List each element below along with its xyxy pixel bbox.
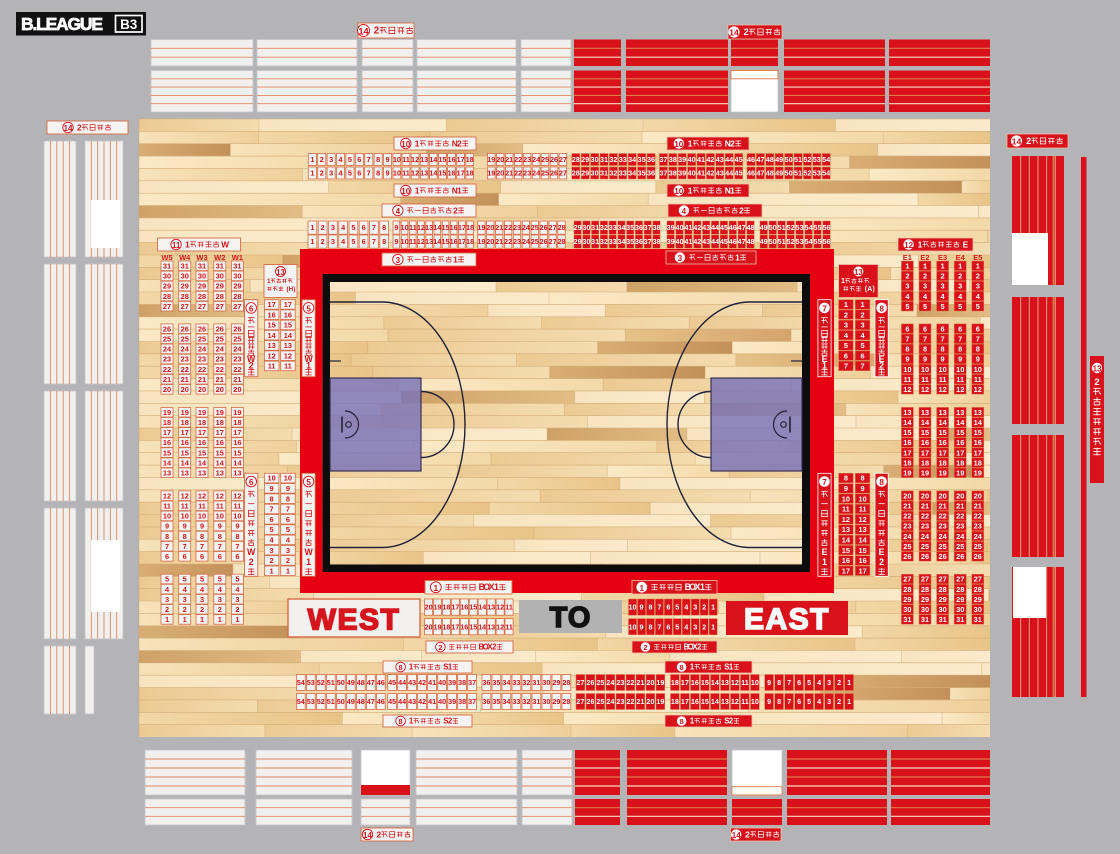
svg-text:41: 41 (697, 155, 705, 164)
svg-text:26: 26 (216, 324, 224, 333)
svg-text:18: 18 (956, 458, 964, 467)
svg-text:40: 40 (438, 678, 446, 687)
svg-text:13: 13 (721, 678, 729, 687)
svg-text:8: 8 (958, 345, 962, 354)
svg-text:3: 3 (183, 595, 187, 604)
svg-text:30: 30 (542, 678, 550, 687)
svg-text:2: 2 (739, 205, 744, 215)
svg-text:1: 1 (711, 603, 715, 612)
svg-text:1: 1 (286, 566, 290, 575)
svg-text:52: 52 (803, 169, 811, 178)
svg-text:45: 45 (388, 697, 396, 706)
svg-text:14: 14 (233, 458, 242, 467)
svg-text:13: 13 (854, 268, 863, 277)
svg-text:21: 21 (505, 155, 513, 164)
svg-text:18: 18 (442, 603, 450, 612)
svg-text:8: 8 (382, 223, 386, 232)
svg-text:15: 15 (903, 428, 911, 437)
svg-text:19: 19 (181, 408, 189, 417)
svg-text:16: 16 (450, 223, 458, 232)
svg-text:2: 2 (321, 237, 325, 246)
svg-text:1: 1 (847, 697, 851, 706)
svg-text:30: 30 (591, 169, 599, 178)
svg-text:16: 16 (691, 678, 699, 687)
svg-text:15: 15 (267, 321, 275, 330)
svg-text:2: 2 (218, 605, 222, 614)
svg-text:6: 6 (941, 324, 945, 333)
svg-text:49: 49 (347, 678, 355, 687)
svg-text:36: 36 (635, 237, 643, 246)
svg-text:26: 26 (903, 552, 911, 561)
svg-text:46: 46 (747, 155, 755, 164)
svg-text:26: 26 (163, 324, 171, 333)
svg-text:27: 27 (216, 302, 224, 311)
svg-text:18: 18 (921, 458, 929, 467)
svg-text:3: 3 (286, 546, 290, 555)
svg-text:16: 16 (956, 438, 964, 447)
svg-text:42: 42 (418, 697, 426, 706)
svg-text:37: 37 (468, 678, 476, 687)
svg-text:5: 5 (807, 678, 811, 687)
svg-text:7: 7 (861, 362, 865, 371)
svg-text:10: 10 (267, 474, 275, 483)
svg-text:5: 5 (675, 622, 679, 631)
svg-text:7: 7 (372, 223, 376, 232)
svg-text:5: 5 (348, 155, 352, 164)
svg-text:28: 28 (181, 292, 189, 301)
svg-text:8: 8 (941, 345, 945, 354)
svg-text:7: 7 (787, 678, 791, 687)
svg-text:1: 1 (185, 239, 190, 249)
svg-text:10: 10 (629, 622, 637, 631)
svg-text:9: 9 (385, 169, 389, 178)
svg-text:14: 14 (216, 458, 225, 467)
svg-text:19: 19 (198, 408, 206, 417)
svg-text:8: 8 (680, 663, 684, 672)
svg-text:7: 7 (941, 335, 945, 344)
svg-text:2: 2 (923, 272, 927, 281)
svg-text:6: 6 (235, 552, 239, 561)
svg-text:6: 6 (958, 324, 962, 333)
svg-text:10: 10 (393, 155, 401, 164)
svg-text:29: 29 (974, 595, 982, 604)
svg-text:37: 37 (644, 223, 652, 232)
svg-text:38: 38 (669, 169, 677, 178)
svg-text:31: 31 (921, 615, 929, 624)
svg-text:54: 54 (805, 237, 814, 246)
svg-text:1: 1 (306, 557, 311, 567)
svg-text:1: 1 (267, 278, 271, 285)
svg-text:25: 25 (531, 237, 539, 246)
svg-text:27: 27 (956, 575, 964, 584)
svg-text:19: 19 (216, 408, 224, 417)
svg-text:17: 17 (956, 448, 964, 457)
svg-text:15: 15 (284, 321, 292, 330)
svg-text:10: 10 (393, 169, 401, 178)
svg-text:17: 17 (681, 697, 689, 706)
svg-text:35: 35 (626, 223, 634, 232)
svg-text:50: 50 (769, 223, 777, 232)
svg-text:6: 6 (165, 552, 169, 561)
svg-text:32: 32 (522, 697, 530, 706)
svg-text:1: 1 (847, 678, 851, 687)
svg-text:5: 5 (270, 525, 274, 534)
svg-text:16: 16 (938, 438, 946, 447)
svg-text:11: 11 (163, 502, 171, 511)
svg-text:15: 15 (938, 428, 946, 437)
svg-text:14: 14 (711, 697, 719, 706)
svg-text:22: 22 (233, 365, 241, 374)
svg-text:17: 17 (233, 428, 241, 437)
svg-text:7: 7 (200, 542, 204, 551)
svg-text:1: 1 (923, 262, 927, 271)
svg-text:47: 47 (738, 237, 746, 246)
svg-text:TO: TO (550, 602, 592, 634)
svg-text:11: 11 (741, 678, 749, 687)
svg-text:2: 2 (702, 622, 706, 631)
svg-text:24: 24 (532, 169, 541, 178)
svg-text:9: 9 (923, 355, 927, 364)
svg-text:7: 7 (822, 478, 827, 487)
svg-text:40: 40 (688, 155, 696, 164)
svg-text:24: 24 (921, 532, 930, 541)
svg-text:23: 23 (181, 355, 189, 364)
svg-text:27: 27 (233, 302, 241, 311)
svg-text:1: 1 (861, 300, 865, 309)
svg-text:18: 18 (466, 237, 474, 246)
svg-text:23: 23 (233, 355, 241, 364)
svg-text:17: 17 (457, 169, 465, 178)
svg-text:2: 2 (1026, 136, 1031, 146)
svg-text:1: 1 (841, 278, 845, 285)
svg-text:44: 44 (398, 678, 406, 687)
svg-text:1: 1 (415, 138, 420, 148)
svg-text:29: 29 (903, 595, 911, 604)
svg-text:26: 26 (921, 552, 929, 561)
svg-text:17: 17 (451, 603, 459, 612)
svg-text:13: 13 (425, 237, 433, 246)
svg-text:31: 31 (974, 615, 982, 624)
svg-text:11: 11 (233, 502, 241, 511)
svg-text:21: 21 (181, 375, 189, 384)
svg-text:44: 44 (398, 697, 406, 706)
svg-text:8: 8 (235, 532, 239, 541)
svg-text:42: 42 (418, 678, 426, 687)
svg-text:49: 49 (347, 697, 355, 706)
svg-text:41: 41 (697, 169, 705, 178)
svg-text:21: 21 (198, 375, 206, 384)
svg-text:27: 27 (549, 237, 557, 246)
svg-text:12: 12 (417, 223, 425, 232)
svg-text:13: 13 (276, 268, 285, 277)
svg-text:5: 5 (976, 302, 980, 311)
svg-text:11: 11 (409, 237, 417, 246)
svg-text:2: 2 (321, 223, 325, 232)
svg-text:26: 26 (198, 324, 206, 333)
svg-text:32: 32 (609, 155, 617, 164)
svg-text:11: 11 (741, 697, 749, 706)
svg-text:19: 19 (233, 408, 241, 417)
svg-text:47: 47 (756, 169, 764, 178)
svg-text:15: 15 (438, 155, 446, 164)
svg-text:35: 35 (638, 169, 646, 178)
svg-text:20: 20 (921, 491, 929, 500)
svg-text:43: 43 (408, 678, 416, 687)
svg-text:15: 15 (842, 546, 850, 555)
svg-text:25: 25 (596, 678, 604, 687)
svg-text:30: 30 (163, 272, 171, 281)
svg-text:13: 13 (1092, 364, 1102, 373)
svg-text:24: 24 (163, 345, 172, 354)
svg-text:2: 2 (235, 605, 239, 614)
svg-text:31: 31 (163, 262, 171, 271)
svg-text:5: 5 (941, 302, 945, 311)
svg-text:23: 23 (974, 522, 982, 531)
svg-text:7: 7 (218, 542, 222, 551)
svg-text:15: 15 (233, 448, 241, 457)
svg-text:2: 2 (702, 603, 706, 612)
svg-text:6: 6 (844, 351, 848, 360)
svg-text:27: 27 (576, 678, 584, 687)
svg-text:18: 18 (198, 418, 206, 427)
svg-text:2: 2 (1094, 377, 1099, 388)
svg-text:19: 19 (921, 469, 929, 478)
svg-text:16: 16 (447, 169, 455, 178)
svg-text:21: 21 (233, 375, 241, 384)
svg-text:27: 27 (974, 575, 982, 584)
svg-text:8: 8 (777, 678, 781, 687)
svg-text:3: 3 (693, 603, 697, 612)
svg-text:5: 5 (923, 302, 927, 311)
svg-text:27: 27 (163, 302, 171, 311)
svg-text:21: 21 (216, 375, 224, 384)
svg-text:51: 51 (327, 697, 335, 706)
svg-text:11: 11 (198, 502, 206, 511)
svg-text:31: 31 (600, 169, 608, 178)
svg-text:28: 28 (562, 697, 570, 706)
svg-text:12: 12 (842, 515, 850, 524)
svg-text:9: 9 (286, 484, 290, 493)
svg-text:29: 29 (198, 282, 206, 291)
svg-text:8: 8 (286, 494, 290, 503)
svg-text:31: 31 (532, 697, 540, 706)
svg-text:51: 51 (794, 169, 802, 178)
svg-text:1: 1 (448, 663, 453, 672)
svg-text:22: 22 (956, 512, 964, 521)
svg-text:9: 9 (640, 622, 644, 631)
svg-text:37: 37 (644, 237, 652, 246)
svg-text:14: 14 (732, 831, 742, 840)
svg-text:42: 42 (706, 155, 714, 164)
svg-text:19: 19 (477, 223, 485, 232)
svg-text:2: 2 (729, 717, 734, 726)
svg-text:2: 2 (165, 605, 169, 614)
svg-text:53: 53 (796, 223, 804, 232)
svg-text:24: 24 (216, 345, 225, 354)
svg-text:19: 19 (974, 469, 982, 478)
svg-text:14: 14 (181, 458, 190, 467)
svg-text:36: 36 (647, 155, 655, 164)
svg-text:10: 10 (903, 365, 911, 374)
svg-text:1: 1 (844, 300, 848, 309)
svg-text:24: 24 (233, 345, 242, 354)
svg-text:1: 1 (165, 615, 169, 624)
svg-text:20: 20 (233, 385, 241, 394)
svg-text:8: 8 (200, 532, 204, 541)
svg-text:17: 17 (163, 428, 171, 437)
svg-text:30: 30 (956, 605, 964, 614)
svg-text:41: 41 (684, 237, 692, 246)
svg-text:17: 17 (181, 428, 189, 437)
svg-text:30: 30 (181, 272, 189, 281)
svg-text:29: 29 (921, 595, 929, 604)
svg-text:13: 13 (842, 525, 850, 534)
svg-text:28: 28 (956, 585, 964, 594)
svg-text:52: 52 (803, 155, 811, 164)
svg-text:3: 3 (218, 595, 222, 604)
svg-text:26: 26 (956, 552, 964, 561)
svg-text:17: 17 (842, 566, 850, 575)
svg-text:W: W (304, 547, 313, 557)
svg-text:38: 38 (652, 223, 660, 232)
svg-text:12: 12 (921, 385, 929, 394)
svg-text:3: 3 (165, 595, 169, 604)
svg-text:22: 22 (181, 365, 189, 374)
svg-text:25: 25 (921, 542, 929, 551)
svg-text:28: 28 (572, 169, 580, 178)
svg-text:E: E (822, 547, 828, 557)
svg-text:13: 13 (487, 622, 495, 631)
svg-text:13: 13 (420, 169, 428, 178)
svg-text:7: 7 (905, 335, 909, 344)
svg-text:31: 31 (216, 262, 224, 271)
svg-text:18: 18 (671, 678, 679, 687)
svg-text:17: 17 (858, 566, 866, 575)
svg-text:9: 9 (905, 355, 909, 364)
svg-text:3: 3 (235, 595, 239, 604)
svg-text:10: 10 (751, 678, 759, 687)
svg-text:39: 39 (448, 678, 456, 687)
svg-text:6: 6 (357, 169, 361, 178)
svg-text:17: 17 (458, 223, 466, 232)
svg-text:8: 8 (861, 474, 865, 483)
svg-text:14: 14 (711, 678, 719, 687)
svg-text:50: 50 (337, 678, 345, 687)
svg-text:20: 20 (496, 169, 504, 178)
svg-text:11: 11 (974, 375, 982, 384)
svg-text:14: 14 (429, 169, 438, 178)
svg-text:39: 39 (448, 697, 456, 706)
svg-text:19: 19 (938, 469, 946, 478)
svg-text:25: 25 (541, 169, 549, 178)
svg-text:28: 28 (562, 678, 570, 687)
svg-text:35: 35 (492, 678, 500, 687)
svg-text:39: 39 (667, 237, 675, 246)
svg-text:1: 1 (457, 185, 462, 195)
svg-text:55: 55 (814, 237, 822, 246)
svg-text:10: 10 (956, 365, 964, 374)
svg-text:1: 1 (688, 185, 693, 195)
svg-text:12: 12 (974, 385, 982, 394)
svg-text:33: 33 (512, 697, 520, 706)
svg-text:17: 17 (216, 428, 224, 437)
svg-text:3: 3 (844, 321, 848, 330)
svg-text:4: 4 (684, 603, 688, 612)
svg-text:22: 22 (504, 237, 512, 246)
svg-text:8: 8 (165, 532, 169, 541)
svg-text:21: 21 (974, 502, 982, 511)
svg-text:8: 8 (218, 532, 222, 541)
svg-text:15: 15 (441, 237, 449, 246)
svg-text:3: 3 (941, 282, 945, 291)
svg-text:1: 1 (433, 583, 438, 593)
svg-text:1: 1 (310, 169, 314, 178)
svg-text:28: 28 (557, 237, 565, 246)
svg-text:17: 17 (938, 448, 946, 457)
svg-text:2: 2 (492, 643, 497, 652)
svg-text:1: 1 (729, 663, 734, 672)
svg-text:39: 39 (678, 155, 686, 164)
svg-text:2: 2 (976, 272, 980, 281)
svg-text:22: 22 (938, 512, 946, 521)
svg-text:36: 36 (647, 169, 655, 178)
svg-text:17: 17 (921, 448, 929, 457)
svg-text:24: 24 (198, 345, 207, 354)
svg-text:5: 5 (351, 223, 355, 232)
svg-text:14: 14 (429, 155, 438, 164)
svg-text:11: 11 (268, 362, 276, 371)
svg-text:45: 45 (720, 237, 728, 246)
svg-text:31: 31 (956, 615, 964, 624)
svg-text:20: 20 (974, 491, 982, 500)
svg-text:3: 3 (678, 254, 683, 263)
svg-text:14: 14 (163, 458, 172, 467)
svg-text:8: 8 (183, 532, 187, 541)
svg-text:56: 56 (822, 223, 830, 232)
svg-text:27: 27 (549, 223, 557, 232)
svg-text:5: 5 (235, 575, 239, 584)
svg-text:2: 2 (77, 122, 82, 132)
svg-text:17: 17 (681, 678, 689, 687)
svg-text:31: 31 (233, 262, 241, 271)
svg-text:34: 34 (502, 697, 510, 706)
svg-text:54: 54 (297, 697, 305, 706)
svg-text:18: 18 (181, 418, 189, 427)
svg-text:31: 31 (532, 678, 540, 687)
svg-text:10: 10 (216, 512, 224, 521)
svg-text:20: 20 (198, 385, 206, 394)
svg-text:16: 16 (284, 310, 292, 319)
svg-text:14: 14 (267, 331, 276, 340)
svg-text:32: 32 (522, 678, 530, 687)
svg-text:1: 1 (183, 615, 187, 624)
svg-text:14: 14 (478, 622, 486, 631)
svg-text:12: 12 (496, 603, 504, 612)
svg-text:28: 28 (938, 585, 946, 594)
svg-text:28: 28 (216, 292, 224, 301)
svg-text:18: 18 (938, 458, 946, 467)
svg-text:12: 12 (411, 155, 419, 164)
svg-text:47: 47 (367, 678, 375, 687)
svg-text:8: 8 (376, 155, 380, 164)
svg-text:14: 14 (956, 418, 965, 427)
svg-text:7: 7 (787, 697, 791, 706)
svg-text:12: 12 (938, 385, 946, 394)
svg-text:52: 52 (787, 223, 795, 232)
svg-text:9: 9 (165, 522, 169, 531)
svg-text:11: 11 (172, 241, 181, 250)
svg-text:23: 23 (903, 522, 911, 531)
